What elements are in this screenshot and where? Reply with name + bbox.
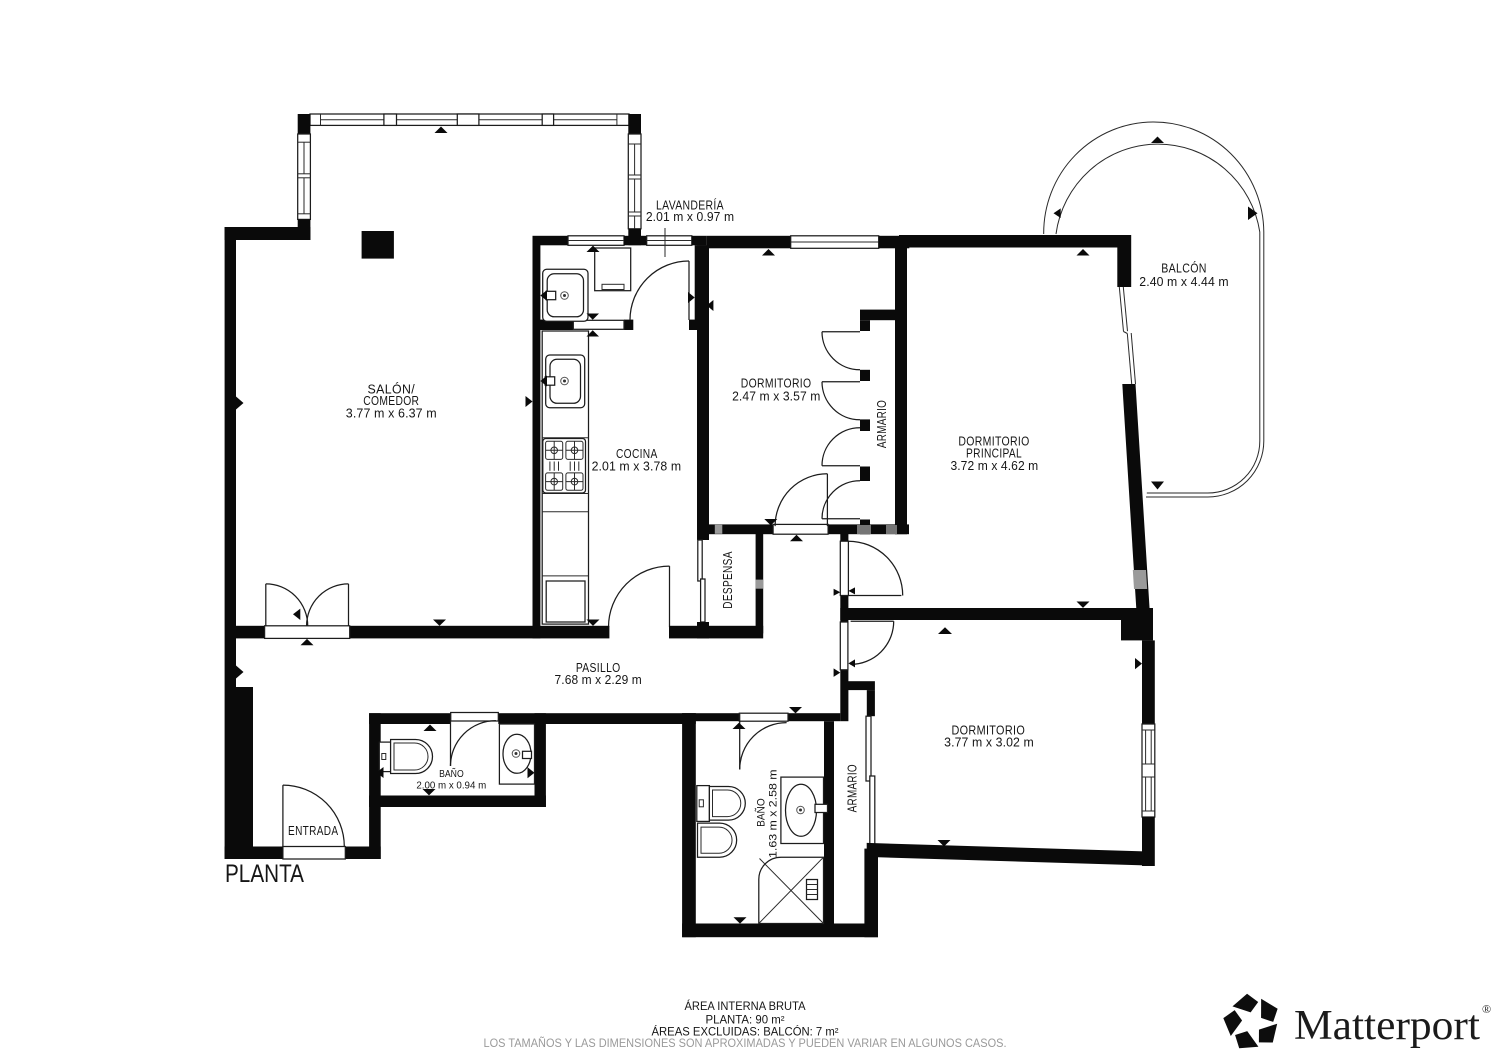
- svg-text:2.47 m x 3.57 m: 2.47 m x 3.57 m: [732, 388, 820, 403]
- svg-text:ARMARIO: ARMARIO: [874, 400, 889, 448]
- svg-text:ARMARIO: ARMARIO: [845, 764, 860, 812]
- svg-text:Matterport: Matterport: [1294, 1003, 1480, 1049]
- svg-text:7.68 m x 2.29 m: 7.68 m x 2.29 m: [555, 672, 642, 687]
- svg-text:2.01 m x 3.78 m: 2.01 m x 3.78 m: [592, 459, 682, 474]
- svg-text:3.72 m x 4.62 m: 3.72 m x 4.62 m: [950, 458, 1038, 473]
- svg-text:2.40 m x 4.44 m: 2.40 m x 4.44 m: [1139, 274, 1228, 289]
- svg-text:PLANTA: PLANTA: [225, 860, 304, 888]
- svg-text:3.77 m x 6.37 m: 3.77 m x 6.37 m: [346, 405, 437, 420]
- svg-text:ÁREAS EXCLUIDAS: BALCÓN: 7 m²: ÁREAS EXCLUIDAS: BALCÓN: 7 m²: [652, 1026, 839, 1039]
- svg-text:BAÑO: BAÑO: [439, 767, 464, 780]
- svg-text:1.63 m x 2.58 m: 1.63 m x 2.58 m: [768, 769, 780, 858]
- svg-text:ÁREA INTERNA BRUTA: ÁREA INTERNA BRUTA: [685, 1000, 806, 1013]
- svg-text:ENTRADA: ENTRADA: [288, 823, 338, 838]
- svg-text:DESPENSA: DESPENSA: [720, 551, 735, 609]
- svg-text:PLANTA: 90 m²: PLANTA: 90 m²: [706, 1015, 785, 1027]
- svg-text:2.01 m x 0.97 m: 2.01 m x 0.97 m: [646, 209, 734, 224]
- svg-text:BAÑO: BAÑO: [755, 798, 768, 827]
- svg-text:®: ®: [1482, 1002, 1491, 1016]
- svg-text:LOS TAMAÑOS Y LAS DIMENSIONES: LOS TAMAÑOS Y LAS DIMENSIONES SON APROXI…: [484, 1037, 1007, 1050]
- svg-text:3.77 m x 3.02 m: 3.77 m x 3.02 m: [944, 735, 1034, 750]
